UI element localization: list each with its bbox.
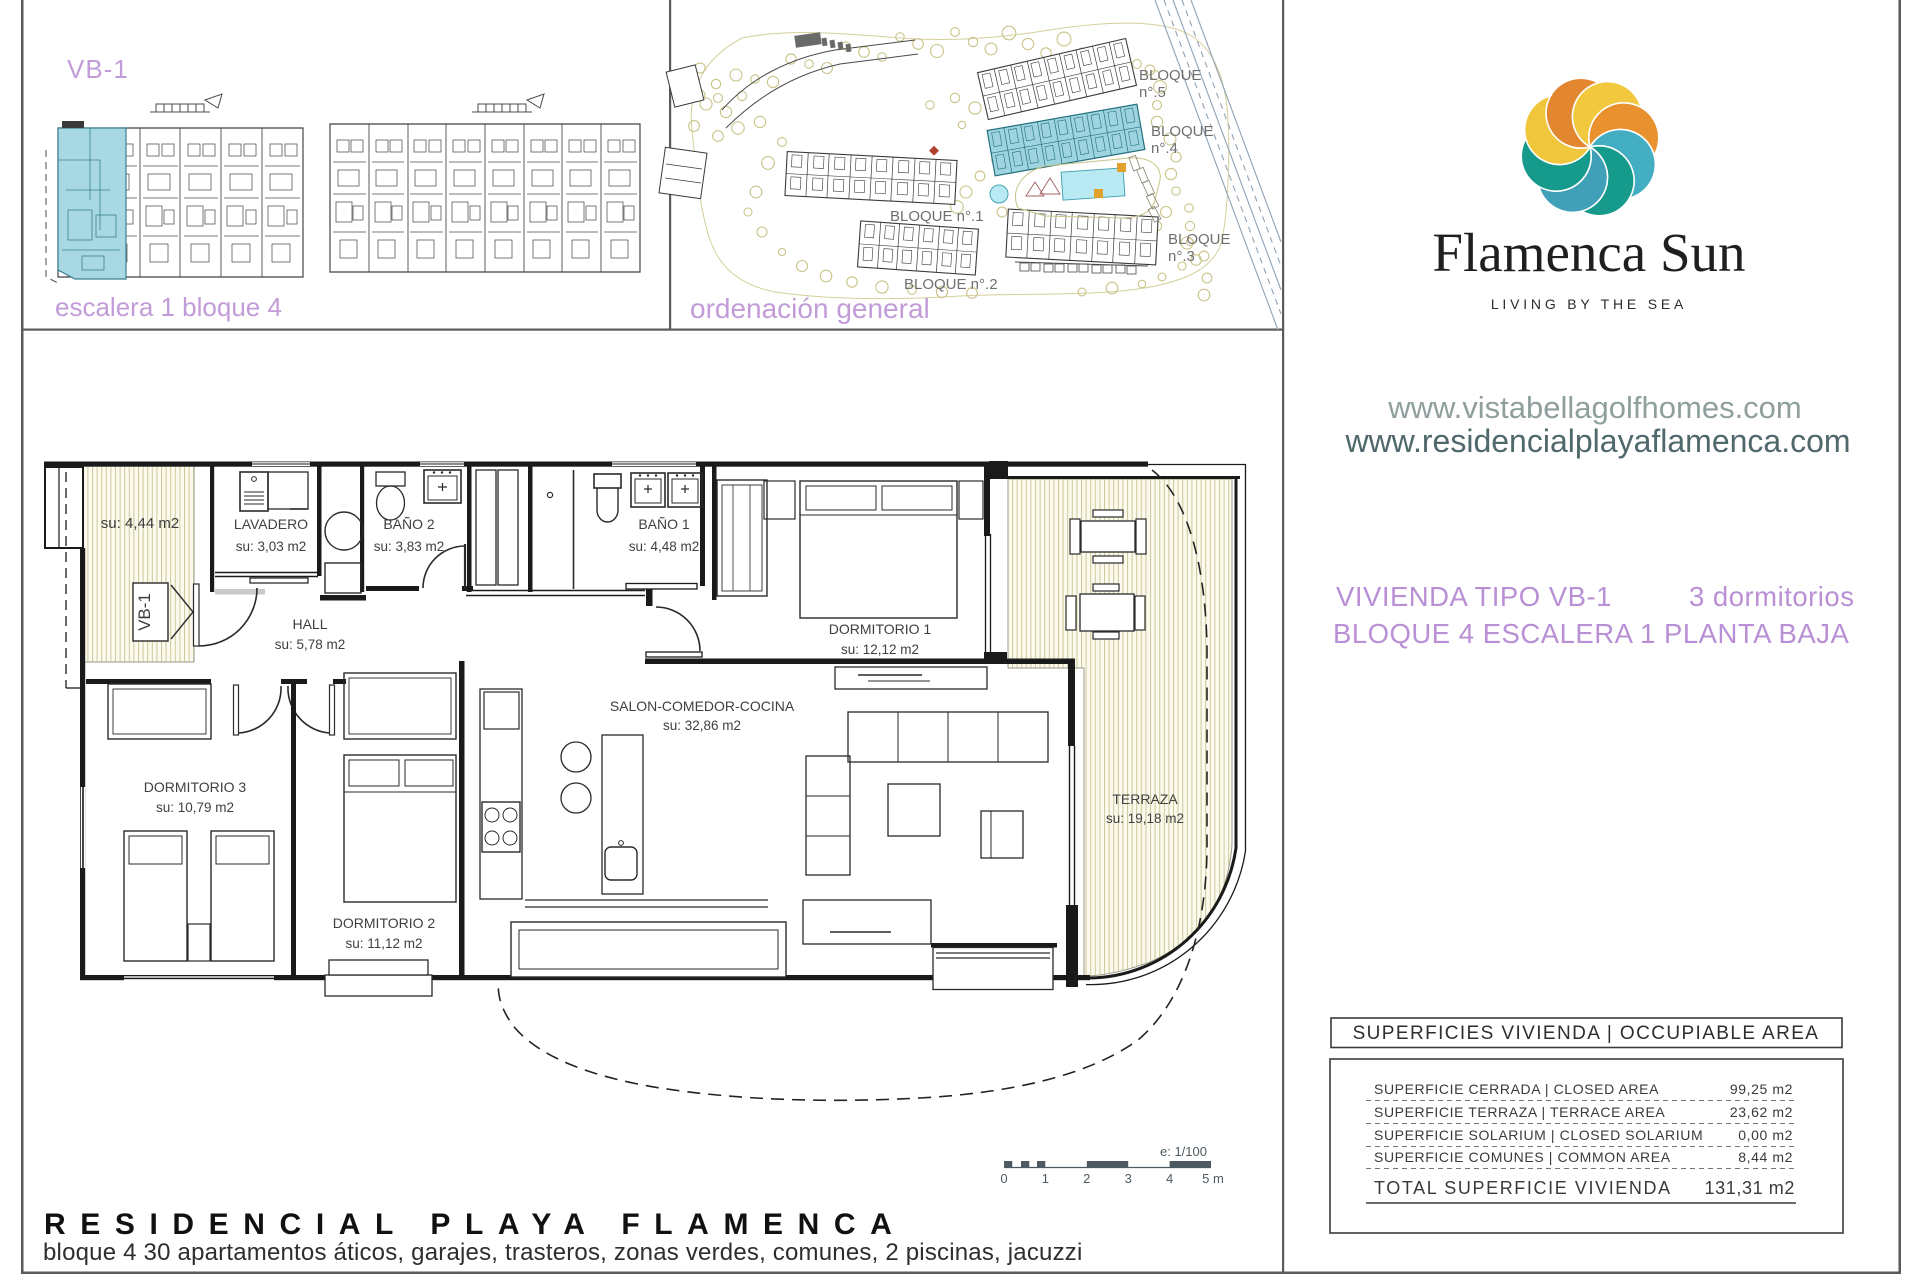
svg-text:su: 3,83 m2: su: 3,83 m2 [374,539,445,554]
svg-text:su: 4,44 m2: su: 4,44 m2 [101,515,179,532]
svg-text:2: 2 [1083,1171,1090,1186]
svg-text:DORMITORIO 2: DORMITORIO 2 [333,915,436,931]
svg-text:3: 3 [1125,1171,1132,1186]
svg-text:RESIDENCIAL PLAYA FLAMENCA: RESIDENCIAL PLAYA FLAMENCA [44,1208,906,1241]
svg-text:bloque 4 30 apartamentos ático: bloque 4 30 apartamentos áticos, garajes… [43,1239,1083,1266]
svg-text:BLOQUE n°.1: BLOQUE n°.1 [890,208,984,225]
svg-text:su: 12,12 m2: su: 12,12 m2 [841,642,919,657]
svg-text:LAVADERO: LAVADERO [234,516,308,532]
svg-text:SUPERFICIE TERRAZA | TERRA: SUPERFICIE TERRAZA | TERRACE AREA [1374,1104,1665,1120]
svg-text:131,31 m2: 131,31 m2 [1705,1178,1795,1198]
svg-text:23,62 m2: 23,62 m2 [1730,1104,1793,1120]
svg-text:SUPERFICIES VIVIENDA | OCCUP: SUPERFICIES VIVIENDA | OCCUPIABLE AREA [1353,1023,1820,1044]
svg-text:VB-1: VB-1 [135,593,154,631]
svg-text:LIVING BY THE SEA: LIVING BY THE SEA [1491,296,1687,312]
svg-text:TERRAZA: TERRAZA [1112,791,1178,807]
svg-text:SUPERFICIE SOLARIUM | CLOSED: SUPERFICIE SOLARIUM | CLOSED SOLARIUM [1374,1127,1703,1143]
svg-text:su: 10,79 m2: su: 10,79 m2 [156,800,234,815]
svg-text:su: 3,03 m2: su: 3,03 m2 [236,539,307,554]
svg-text:www.vistabellagolfhomes.com: www.vistabellagolfhomes.com [1387,390,1802,425]
svg-text:VB-1: VB-1 [67,54,129,84]
svg-text:su: 32,86 m2: su: 32,86 m2 [663,718,741,733]
svg-text:99,25 m2: 99,25 m2 [1730,1081,1793,1097]
svg-text:su: 5,78 m2: su: 5,78 m2 [275,637,346,652]
svg-text:e: 1/100: e: 1/100 [1160,1144,1207,1159]
svg-text:3 dormitorios: 3 dormitorios [1689,581,1854,612]
svg-text:ordenación general: ordenación general [690,293,930,324]
svg-text:Flamenca Sun: Flamenca Sun [1432,222,1745,283]
svg-text:BLOQUE n°.2: BLOQUE n°.2 [904,276,998,293]
svg-text:0,00 m2: 0,00 m2 [1738,1127,1793,1143]
svg-text:0: 0 [1000,1171,1007,1186]
svg-text:BLOQUE: BLOQUE [1168,231,1231,248]
svg-text:TOTAL SUPERFICIE VIVIENDA: TOTAL SUPERFICIE VIVIENDA [1374,1178,1672,1198]
svg-text:BLOQUE: BLOQUE [1151,123,1214,140]
svg-text:HALL: HALL [292,616,327,632]
svg-text:SUPERFICIE COMUNES | COMMON: SUPERFICIE COMUNES | COMMON AREA [1374,1149,1671,1165]
svg-text:BAÑO 1: BAÑO 1 [638,516,690,532]
svg-text:VIVIENDA TIPO VB-1: VIVIENDA TIPO VB-1 [1336,581,1612,612]
svg-text:BAÑO 2: BAÑO 2 [383,516,435,532]
svg-text:SUPERFICIE CERRADA | CLOSED: SUPERFICIE CERRADA | CLOSED AREA [1374,1081,1659,1097]
svg-text:su: 4,48 m2: su: 4,48 m2 [629,539,700,554]
svg-text:www.residencialplayaflamenca.c: www.residencialplayaflamenca.com [1344,423,1850,459]
svg-text:DORMITORIO 3: DORMITORIO 3 [144,779,247,795]
svg-text:escalera 1 bloque 4: escalera 1 bloque 4 [55,292,282,322]
svg-text:8,44 m2: 8,44 m2 [1738,1149,1793,1165]
svg-text:n°.5: n°.5 [1139,84,1166,101]
svg-text:n°.3: n°.3 [1168,248,1195,265]
svg-text:4: 4 [1166,1171,1173,1186]
svg-text:SALON-COMEDOR-COCINA: SALON-COMEDOR-COCINA [610,698,795,714]
svg-text:5 m: 5 m [1202,1171,1224,1186]
svg-text:su: 11,12 m2: su: 11,12 m2 [345,936,422,951]
svg-text:BLOQUE 4 ESCALERA 1 PLANTA B: BLOQUE 4 ESCALERA 1 PLANTA BAJA [1333,618,1849,649]
svg-text:su: 19,18 m2: su: 19,18 m2 [1106,811,1184,826]
svg-text:DORMITORIO 1: DORMITORIO 1 [829,621,932,637]
svg-text:BLOQUE: BLOQUE [1139,67,1202,84]
svg-text:1: 1 [1042,1171,1049,1186]
svg-text:n°.4: n°.4 [1151,140,1178,157]
